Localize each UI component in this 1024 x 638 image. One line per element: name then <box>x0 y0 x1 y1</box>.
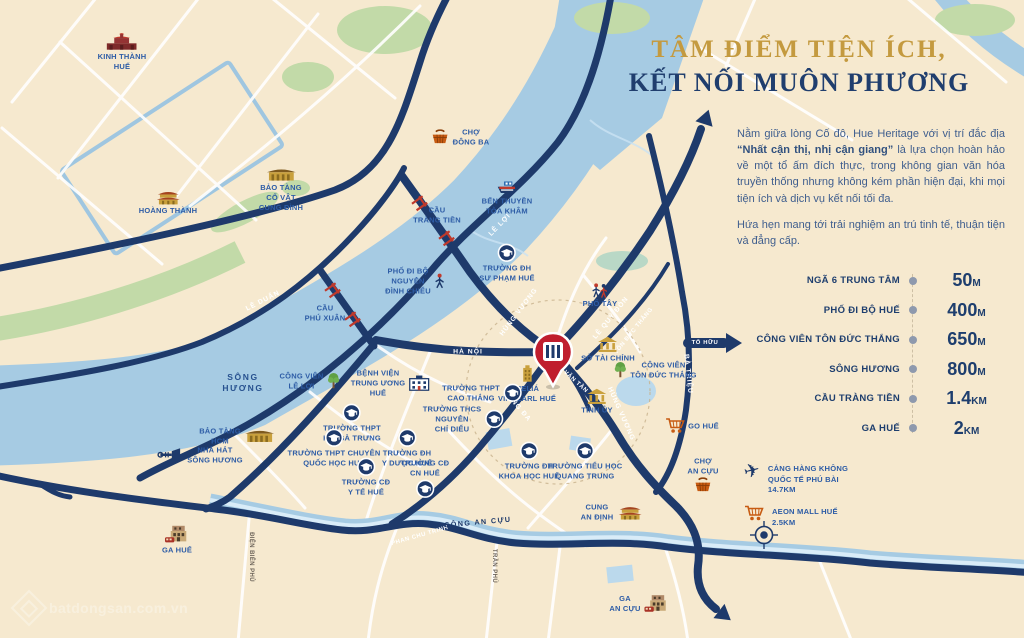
panel-title: TÂM ĐIỂM TIỆN ÍCH, KẾT NỐI MUÔN PHƯƠNG <box>608 36 990 98</box>
poi-label: CẦU PHÚ XUÂN <box>305 303 346 323</box>
bullet-dot-icon <box>900 395 925 403</box>
poi-label: TRƯỜNG CĐ CN HUẾ <box>401 458 450 478</box>
poi-cau-phu-xuan: CẦU PHÚ XUÂN <box>305 303 346 323</box>
distance-label: CẦU TRÀNG TIỀN <box>742 393 900 404</box>
poi-label: CUNG AN ĐỊNH <box>581 502 614 522</box>
govt-building-icon <box>587 389 608 405</box>
poi-label: SÔNG HƯƠNG <box>222 372 263 394</box>
poi-cong-vien-le-loi: CÔNG VIÊN LÊ LỢI <box>280 371 341 391</box>
tree-icon <box>326 373 340 390</box>
distance-row: PHỐ ĐI BỘ HUẾ400M <box>742 296 1008 326</box>
poi-label: CÔNG VIÊN TÔN ĐỨC THẮNG <box>630 360 696 380</box>
distance-value: 800M <box>925 359 1008 380</box>
tree-icon <box>613 362 627 379</box>
palace-icon <box>616 504 643 521</box>
poi-song-huong: SÔNG HƯƠNG <box>222 372 263 394</box>
road-label: ĐIỆN BIÊN PHỦ <box>248 532 254 582</box>
distance-row: CẦU TRÀNG TIỀN1.4KM <box>742 384 1008 414</box>
poi-label: HOÀNG THÀNH <box>139 206 197 216</box>
poi-ben-thuyen-toa-kham: BẾN THUYỀN TÒA KHÂM <box>482 180 533 216</box>
poi-truong-thpt-cao-thang: TRƯỜNG THPT CAO THẮNG <box>442 383 522 403</box>
poi-kinh-thanh-hue: KINH THÀNH HUẾ <box>98 33 147 72</box>
cart-icon <box>665 418 685 435</box>
intro-paragraph-1: Nằm giữa lòng Cố đô, Hue Heritage với vị… <box>737 126 1005 207</box>
legend-text: CẢNG HÀNG KHÔNG QUỐC TẾ PHÚ BÀI 14.7KM <box>768 462 848 496</box>
project-location-pin <box>531 332 575 395</box>
compass-icon <box>749 520 779 555</box>
hospital-icon <box>408 375 429 392</box>
bullet-dot-icon <box>900 365 925 373</box>
distance-row: NGÃ 6 TRUNG TÂM50M <box>742 266 1008 296</box>
school-icon <box>416 479 435 498</box>
road-label: TỐ HỮU <box>692 340 719 346</box>
poi-label: GO HUẾ <box>688 421 719 431</box>
poi-label: KINH THÀNH HUẾ <box>98 52 147 72</box>
distance-value: 400M <box>925 300 1008 321</box>
museum-icon <box>244 429 275 443</box>
distance-row: CÔNG VIÊN TÔN ĐỨC THẮNG650M <box>742 325 1008 355</box>
train-station-icon <box>644 594 671 614</box>
title-line-1: TÂM ĐIỂM TIỆN ÍCH, <box>608 36 990 64</box>
school-icon <box>575 441 594 460</box>
poi-cho-dong-ba: CHỢ ĐÔNG BA <box>431 127 490 147</box>
poi-label: BẢO TÀNG HCM <box>199 426 241 446</box>
poi-label: BỆNH VIỆN TRUNG ƯƠNG HUẾ <box>351 368 406 397</box>
boat-icon <box>495 180 518 195</box>
poi-truong-thcs-nguyen-chi-dieu: TRƯỜNG THCS NGUYỄN CHÍ DIỂU <box>423 404 504 433</box>
distance-label: GA HUẾ <box>742 423 900 434</box>
bullet-dot-icon <box>900 277 925 285</box>
distance-value: 50M <box>925 270 1008 291</box>
poi-cong-vien-ton-duc-thang: CÔNG VIÊN TÔN ĐỨC THẮNG <box>613 360 696 380</box>
school-icon <box>357 457 376 476</box>
market-basket-icon <box>431 130 450 145</box>
poi-cho-an-cuu: CHỢ AN CỰU <box>687 456 718 492</box>
palace-icon <box>154 188 181 205</box>
school-icon <box>397 428 416 447</box>
poi-label: CHỢ AN CỰU <box>687 456 718 476</box>
poi-benh-vien-trung-uong-hue: BỆNH VIỆN TRUNG ƯƠNG HUẾ <box>351 368 430 397</box>
citadel-gate-icon <box>106 33 138 51</box>
poi-label: PHỐ TÂY <box>583 299 618 309</box>
school-icon <box>342 403 361 422</box>
distance-label: SÔNG HƯƠNG <box>742 364 900 375</box>
walking-people-icon <box>592 283 609 298</box>
poi-pho-tay: PHỐ TÂY <box>583 283 618 309</box>
poi-label: TỈNH ỦY <box>581 406 612 416</box>
distance-list: NGÃ 6 TRUNG TÂM50MPHỐ ĐI BỘ HUẾ400MCÔNG … <box>742 266 1008 443</box>
bullet-dot-icon <box>900 306 925 314</box>
distance-label: PHỐ ĐI BỘ HUẾ <box>742 305 900 316</box>
poi-label: CHỢ ĐÔNG BA <box>453 127 490 147</box>
distance-value: 650M <box>925 329 1008 350</box>
watermark: batdongsan.com.vn <box>16 595 188 621</box>
walking-person-icon <box>434 274 445 289</box>
watermark-logo-icon <box>11 590 48 627</box>
school-icon <box>503 384 522 403</box>
intro-paragraph-2: Hứa hẹn mang tới trải nghiệm an trú tinh… <box>737 217 1005 249</box>
poi-label: BẢO TÀNG CỔ VẬT CUNG ĐÌNH <box>259 183 303 212</box>
poi-label: TRƯỜNG TIỂU HỌC QUANG TRUNG <box>548 461 623 481</box>
poi-ga-an-cuu: GA AN CỰU <box>609 594 670 614</box>
bullet-dot-icon <box>900 424 925 432</box>
poi-label: GA AN CỰU <box>609 594 640 614</box>
trumpet-icon <box>157 448 184 463</box>
intro-text: Nằm giữa lòng Cố đô, Hue Heritage với vị… <box>737 126 1005 259</box>
road-label: HÀ NỘI <box>453 349 483 356</box>
poi-truong-dh-su-pham-hue: TRƯỜNG ĐH SƯ PHẠM HUẾ <box>479 243 535 283</box>
poi-tinh-uy: TỈNH ỦY <box>581 389 612 416</box>
poi-label: GA HUẾ <box>162 546 192 556</box>
bullet-dot-icon <box>900 336 925 344</box>
school-icon <box>484 410 503 429</box>
poi-bao-tang-hcm: BẢO TÀNG HCM <box>199 426 275 446</box>
road-label: TRẦN PHÚ <box>491 549 497 583</box>
distance-value: 2KM <box>925 418 1008 439</box>
poi-hoang-thanh: HOÀNG THÀNH <box>139 188 197 216</box>
legend-row: ✈CẢNG HÀNG KHÔNG QUỐC TẾ PHÚ BÀI 14.7KM <box>744 462 848 496</box>
poi-nha-hat-song-huong: NHÀ HÁT SÔNG HƯƠNG <box>157 445 242 465</box>
poi-cung-an-dinh: CUNG AN ĐỊNH <box>581 502 644 522</box>
poi-ga-hue: GA HUẾ <box>162 525 192 556</box>
watermark-text: batdongsan.com.vn <box>49 600 188 616</box>
museum-icon <box>266 168 297 182</box>
title-line-2: KẾT NỐI MUÔN PHƯƠNG <box>608 68 990 98</box>
poi-label: TRƯỜNG ĐH SƯ PHẠM HUẾ <box>479 263 535 283</box>
map-infographic: LÊ DUẨNLÊ LỢIHÀ NỘIHÙNG VƯƠNGLÊ QUÝ ĐÔNT… <box>0 0 1024 638</box>
distance-row: SÔNG HƯƠNG800M <box>742 355 1008 385</box>
school-icon <box>520 441 539 460</box>
train-station-icon <box>164 525 191 545</box>
poi-label: CÔNG VIÊN LÊ LỢI <box>280 371 324 391</box>
distance-row: GA HUẾ2KM <box>742 414 1008 444</box>
govt-building-icon <box>598 337 619 353</box>
poi-label: TRƯỜNG THPT CAO THẮNG <box>442 383 500 403</box>
plane-icon: ✈ <box>744 462 760 482</box>
school-icon <box>324 428 343 447</box>
poi-label: PHỐ ĐI BỘ NGUYỄN ĐÌNH CHIỂU <box>385 266 431 295</box>
poi-label: BẾN THUYỀN TÒA KHÂM <box>482 196 533 216</box>
poi-cau-trang-tien: CẦU TRÀNG TIỀN <box>413 205 461 225</box>
poi-label: TRƯỜNG CĐ Y TẾ HUẾ <box>342 477 391 497</box>
legend-text: AEON MALL HUẾ 2.5KM <box>772 505 838 528</box>
distance-label: CÔNG VIÊN TÔN ĐỨC THẮNG <box>742 334 900 345</box>
poi-truong-cd-cn-hue: TRƯỜNG CĐ CN HUẾ <box>401 458 450 498</box>
distance-value: 1.4KM <box>925 388 1008 409</box>
poi-label: CẦU TRÀNG TIỀN <box>413 205 461 225</box>
poi-label: NHÀ HÁT SÔNG HƯƠNG <box>187 445 242 465</box>
distance-label: NGÃ 6 TRUNG TÂM <box>742 275 900 286</box>
poi-go-hue: GO HUẾ <box>665 418 719 435</box>
poi-pho-di-bo-nguyen-dinh-chieu: PHỐ ĐI BỘ NGUYỄN ĐÌNH CHIỂU <box>385 266 445 295</box>
poi-truong-tieu-hoc-quang-trung: TRƯỜNG TIỂU HỌC QUANG TRUNG <box>548 441 623 481</box>
poi-bao-tang-co-vat-cung-dinh: BẢO TÀNG CỔ VẬT CUNG ĐÌNH <box>259 168 303 212</box>
school-icon <box>497 243 516 262</box>
market-basket-icon <box>693 477 712 492</box>
